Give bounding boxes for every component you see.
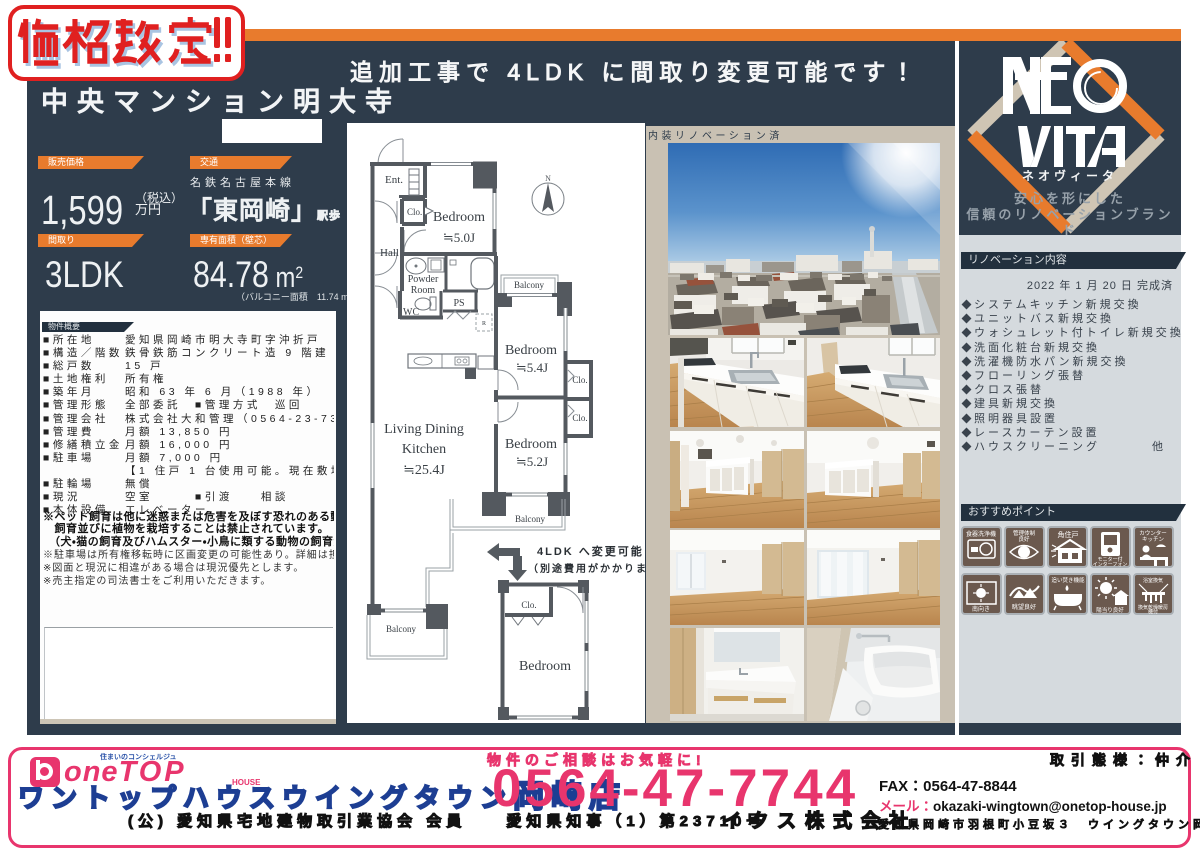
- svg-text:機付: 機付: [1148, 609, 1158, 616]
- svg-text:キッチン: キッチン: [1142, 536, 1165, 543]
- svg-text:浴室換気: 浴室換気: [1143, 577, 1163, 584]
- svg-text:Ent.: Ent.: [385, 174, 403, 186]
- svg-text:追い焚き機能: 追い焚き機能: [1051, 576, 1085, 584]
- svg-text:（別途費用がかかります）: （別途費用がかかります）: [528, 562, 645, 575]
- svg-text:食器洗浄機: 食器洗浄機: [966, 530, 996, 538]
- svg-text:管理体制: 管理体制: [1013, 529, 1036, 537]
- svg-text:Living Dining: Living Dining: [384, 422, 464, 437]
- svg-text:4LDK へ変更可能！: 4LDK へ変更可能！: [537, 544, 645, 558]
- svg-text:ネオヴィータ: ネオヴィータ: [1022, 168, 1118, 183]
- svg-text:Clo.: Clo.: [572, 375, 587, 385]
- svg-text:Bedroom: Bedroom: [505, 437, 557, 452]
- svg-text:Powder: Powder: [408, 274, 439, 285]
- svg-text:N: N: [545, 174, 551, 183]
- svg-text:Clo.: Clo.: [521, 600, 536, 610]
- svg-text:良好: 良好: [1018, 535, 1030, 543]
- svg-text:PS: PS: [453, 298, 464, 309]
- svg-text:Balcony: Balcony: [386, 624, 416, 634]
- svg-text:眺望良好: 眺望良好: [1012, 603, 1036, 611]
- svg-text:Clo.: Clo.: [407, 207, 422, 217]
- svg-text:インターフォン: インターフォン: [1093, 561, 1128, 568]
- svg-text:Clo.: Clo.: [572, 413, 587, 423]
- svg-text:角住戸: 角住戸: [1058, 530, 1079, 539]
- svg-text:Hall: Hall: [380, 247, 399, 259]
- svg-text:R: R: [482, 321, 486, 327]
- svg-text:≒5.2J: ≒5.2J: [516, 454, 548, 469]
- svg-text:Balcony: Balcony: [514, 280, 544, 290]
- svg-text:陽当り良好: 陽当り良好: [1096, 606, 1124, 614]
- svg-text:≒5.4J: ≒5.4J: [516, 360, 548, 375]
- svg-text:Kitchen: Kitchen: [402, 442, 446, 457]
- svg-text:Room: Room: [411, 285, 436, 296]
- svg-text:カウンター: カウンター: [1139, 529, 1167, 537]
- svg-text:≒5.0J: ≒5.0J: [443, 230, 475, 245]
- svg-text:WC: WC: [403, 307, 419, 318]
- svg-text:Bedroom: Bedroom: [433, 210, 485, 225]
- svg-text:Bedroom: Bedroom: [519, 659, 571, 674]
- svg-text:Balcony: Balcony: [515, 514, 545, 524]
- svg-text:≒25.4J: ≒25.4J: [403, 463, 445, 478]
- svg-text:Bedroom: Bedroom: [505, 343, 557, 358]
- svg-text:南向き: 南向き: [972, 605, 990, 613]
